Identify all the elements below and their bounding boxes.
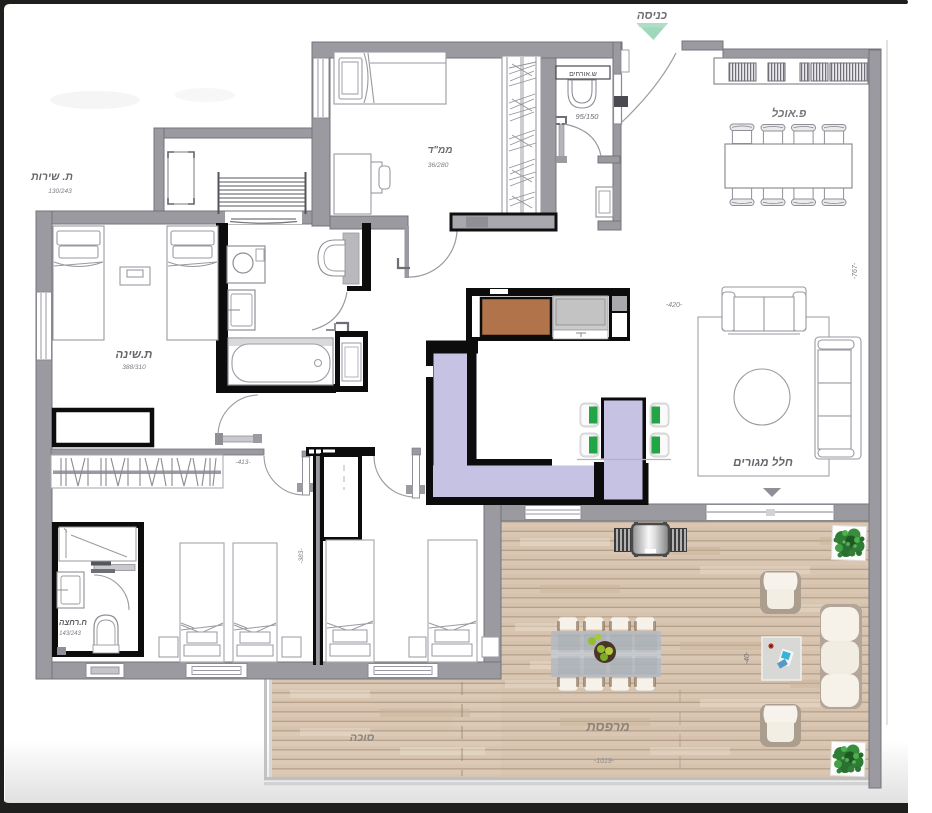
svg-text:חלל מגורים: חלל מגורים <box>733 456 793 469</box>
svg-text:130/243: 130/243 <box>48 188 72 195</box>
svg-text:ת. שירות: ת. שירות <box>30 171 73 183</box>
svg-text:ח.רחצה: ח.רחצה <box>59 618 87 627</box>
svg-text:-383-: -383- <box>298 548 305 564</box>
svg-text:פ.אוכל: פ.אוכל <box>772 107 807 120</box>
svg-text:-40-: -40- <box>744 651 751 664</box>
svg-text:95/150: 95/150 <box>576 112 600 121</box>
svg-text:-767-: -767- <box>852 262 859 279</box>
svg-text:-420-: -420- <box>666 302 683 309</box>
svg-text:-413-: -413- <box>235 459 251 466</box>
svg-text:143/243: 143/243 <box>59 631 81 637</box>
svg-text:ממ"ד: ממ"ד <box>427 145 452 156</box>
svg-text:כניסה: כניסה <box>637 10 667 22</box>
svg-text:מרפסת: מרפסת <box>585 719 629 734</box>
svg-text:388/310: 388/310 <box>122 364 146 371</box>
svg-text:ת.שינה: ת.שינה <box>116 349 153 361</box>
svg-text:ש.אורחים: ש.אורחים <box>569 71 597 78</box>
svg-text:-1019-: -1019- <box>594 758 615 765</box>
svg-text:36/280: 36/280 <box>428 162 449 169</box>
svg-text:סוכה: סוכה <box>350 732 375 744</box>
